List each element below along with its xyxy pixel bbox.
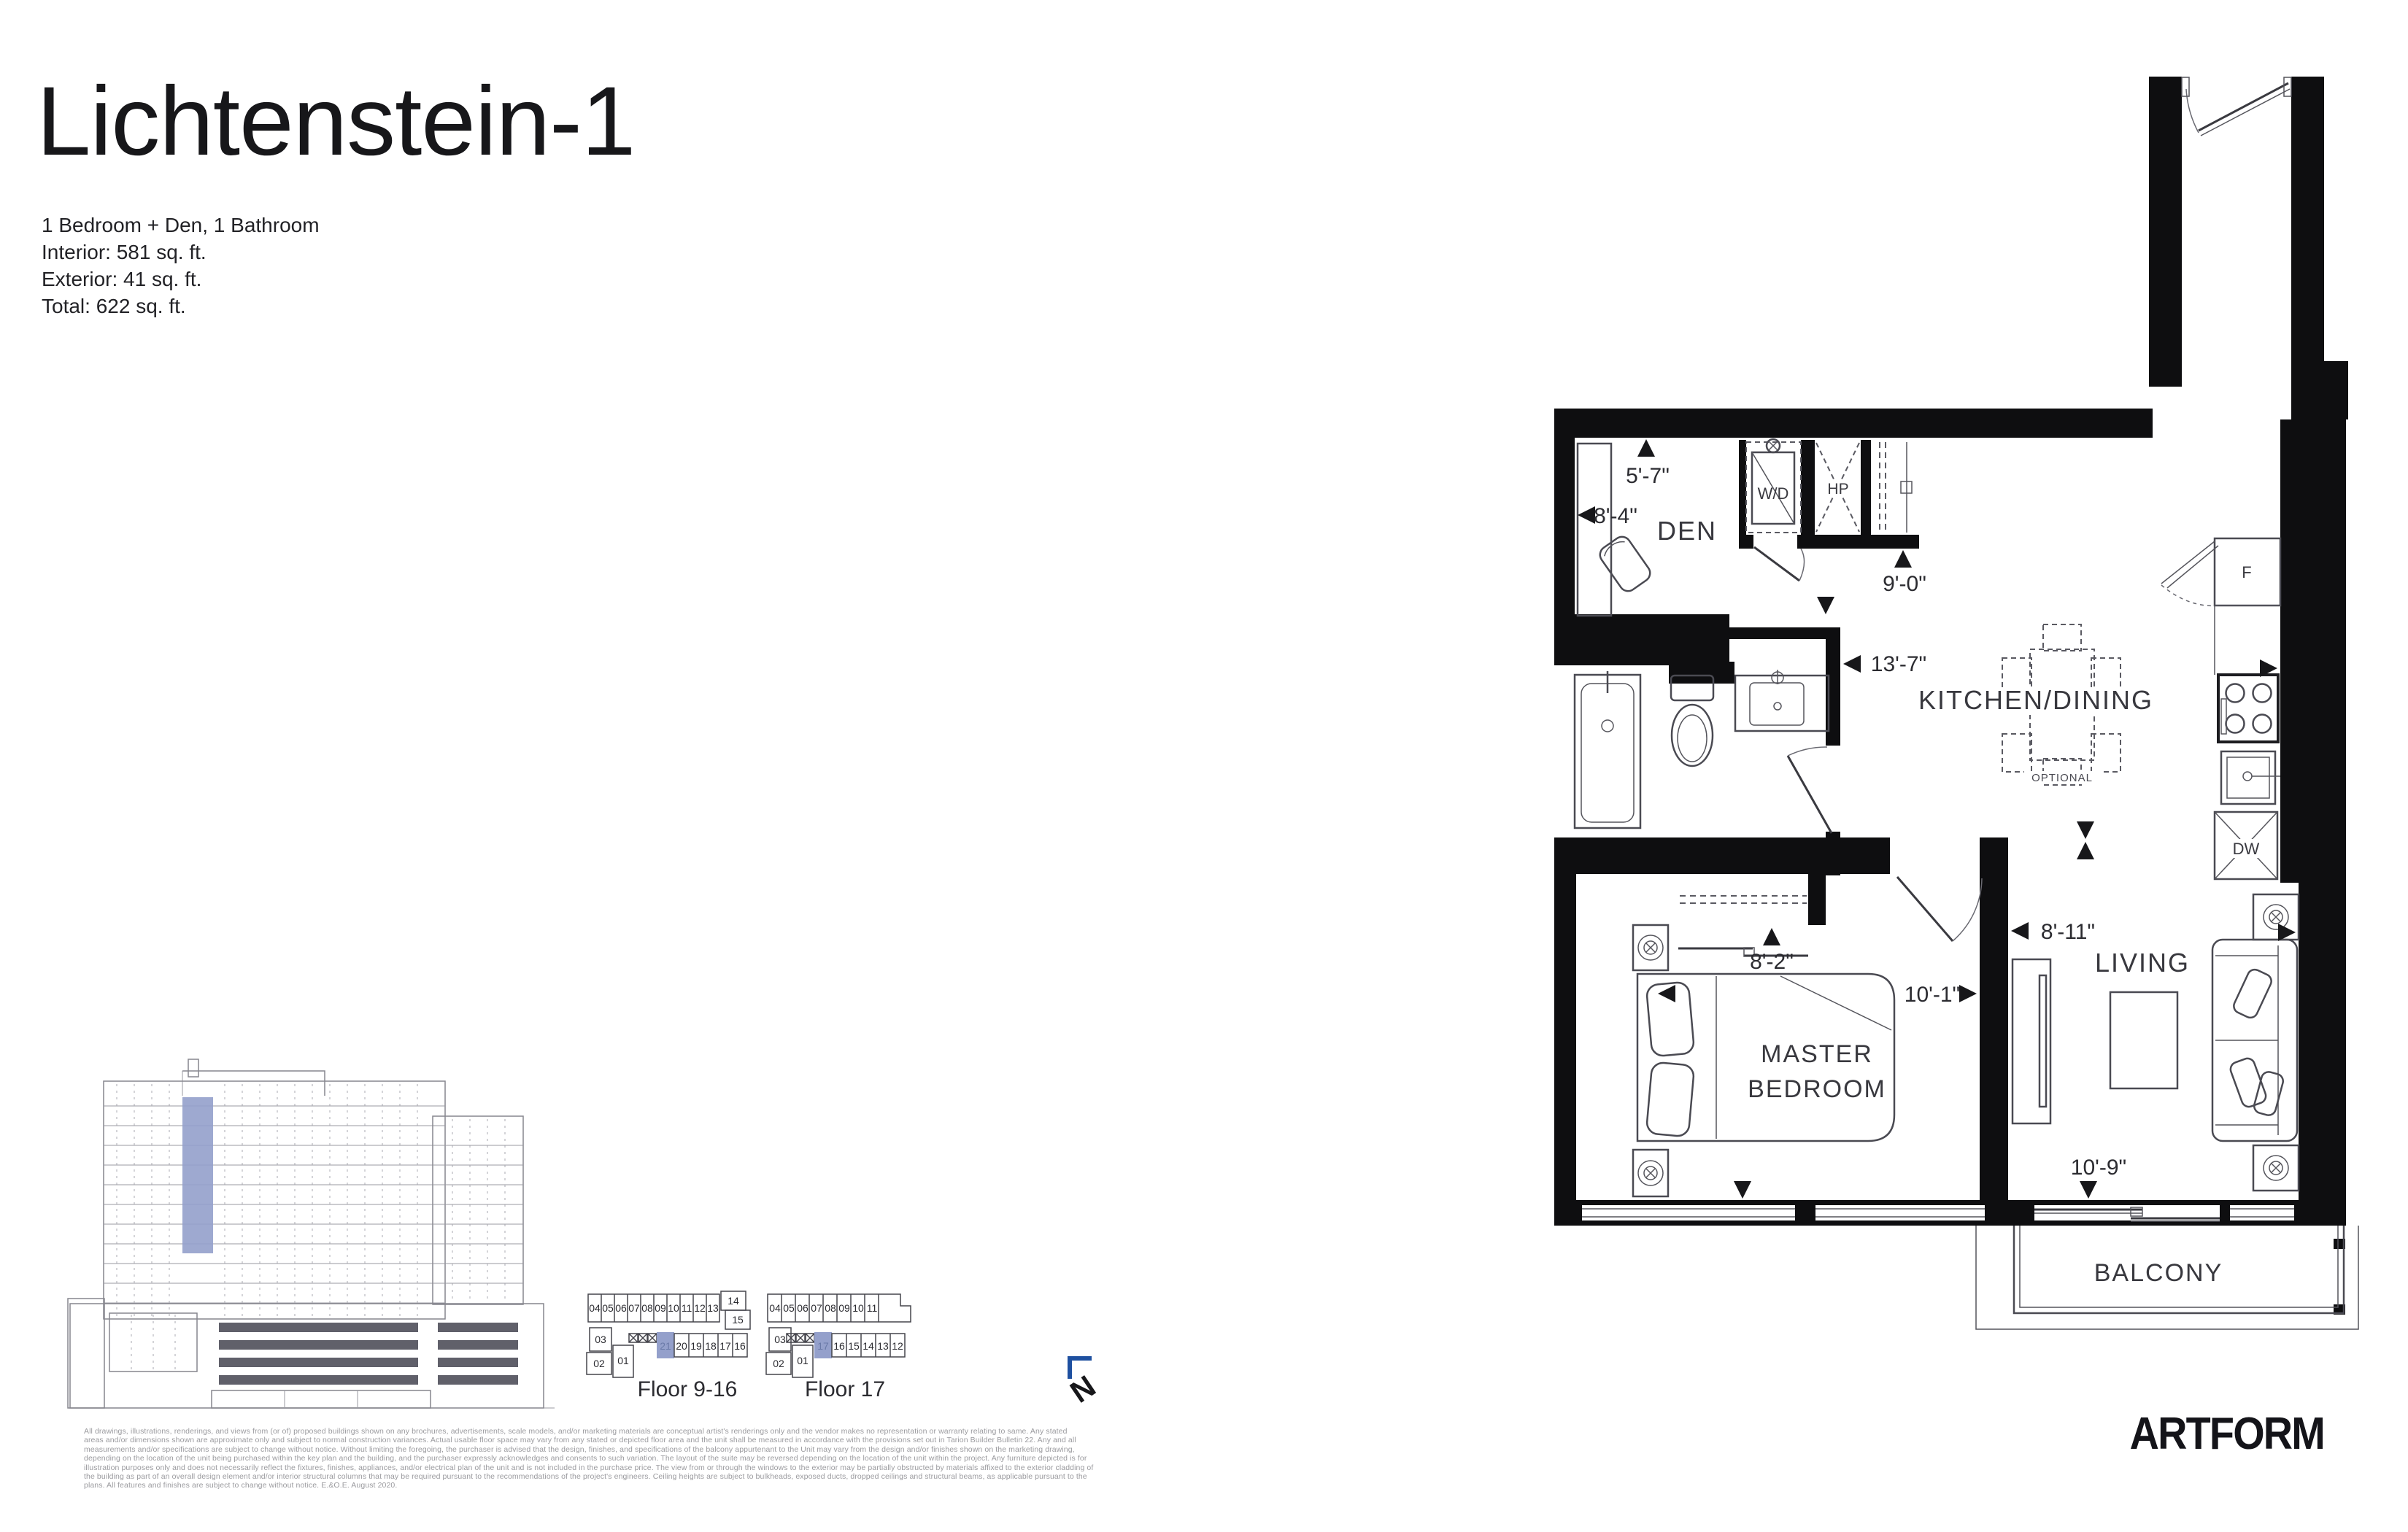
arrow-down-icon	[1817, 597, 1834, 614]
kp2-unit: 02	[773, 1358, 784, 1369]
kp2-unit: 14	[863, 1340, 874, 1352]
arrow-right-icon	[2278, 924, 2296, 941]
kp1-unit: 11	[682, 1302, 692, 1314]
dimensions: 5'-7" 8'-4" 9'-0" 13'-7" 8'-2" 10'-1" 8'…	[1578, 439, 2296, 1199]
bedroom-door	[1897, 877, 1982, 941]
balcony-label: BALCONY	[2094, 1259, 2223, 1287]
arrow-up-icon	[1637, 439, 1655, 457]
arrow-right-icon	[1959, 985, 1977, 1002]
kp1-unit: 06	[615, 1302, 627, 1314]
kp1-unit: 16	[734, 1340, 746, 1352]
kp1-unit: 17	[719, 1340, 731, 1352]
dishwasher-label: DW	[2233, 840, 2260, 858]
living-label: LIVING	[2095, 948, 2190, 978]
kp1-unit: 01	[617, 1355, 629, 1366]
kp1-unit: 15	[732, 1314, 744, 1326]
elevation-mullions	[117, 1084, 417, 1318]
kitchen-dining-label: KITCHEN/DINING	[1918, 685, 2153, 715]
arrow-left-icon	[1658, 985, 1675, 1002]
plan-canvas: W/D HP F	[0, 0, 2408, 1532]
kp2-unit: 15	[848, 1340, 860, 1352]
kp1-unit: 12	[694, 1302, 706, 1314]
arrow-up-icon	[2077, 842, 2094, 859]
kp2-unit: 10	[852, 1302, 864, 1314]
exterior-windows	[1582, 1205, 2294, 1221]
hp-closet: HP	[1816, 443, 1859, 532]
kp2-unit: 07	[811, 1302, 822, 1314]
kp1-unit: 02	[593, 1358, 605, 1369]
arrow-left-icon	[1843, 655, 1861, 673]
master-bedroom-label-line2: BEDROOM	[1748, 1075, 1886, 1103]
artform-logo: ARTFORM	[2124, 1408, 2325, 1460]
kp2-unit: 13	[877, 1340, 889, 1352]
heat-pump-label: HP	[1827, 481, 1848, 498]
keyplan-floor-9-16: 04 05 06 07 08 09 10 11 12 13 14 15 21	[587, 1291, 750, 1401]
dim-den-width: 5'-7"	[1626, 464, 1670, 488]
disclaimer-line: measurements and/or specifications are s…	[84, 1445, 1093, 1454]
dim-living-width: 8'-11"	[2041, 920, 2095, 944]
keyplan-floor-17: 04 05 06 07 08 09 10 11 17 16 15 14 1	[766, 1294, 911, 1401]
disclaimer-line: depending on the location of the unit be…	[84, 1454, 1093, 1463]
kp2-unit: 09	[838, 1302, 850, 1314]
kp1-unit: 09	[655, 1302, 666, 1314]
building-elevation	[68, 1059, 555, 1408]
disclaimer-line: All drawings, illustrations, renderings,…	[84, 1427, 1093, 1436]
kp1-unit: 07	[628, 1302, 640, 1314]
kp1-label: Floor 9-16	[638, 1377, 738, 1401]
dim-bedroom-width: 8'-2"	[1750, 950, 1794, 974]
dim-bedroom-depth: 10'-1"	[1905, 983, 1960, 1007]
disclaimer-line: the building as part of an overall desig…	[84, 1472, 1093, 1481]
washer-dryer-label: W/D	[1758, 484, 1789, 503]
bedroom-closet	[1678, 896, 1808, 956]
kp2-unit: 05	[783, 1302, 795, 1314]
kp2-unit: 12	[892, 1340, 903, 1352]
disclaimer-line: areas and/or dimensions shown are approx…	[84, 1436, 1093, 1444]
kp1-unit: 20	[676, 1340, 687, 1352]
dim-kitchen: 13'-7"	[1871, 652, 1926, 676]
kp1-unit: 14	[728, 1295, 739, 1307]
kp2-label: Floor 17	[805, 1377, 885, 1401]
kp2-unit: 08	[825, 1302, 836, 1314]
arrow-left-icon	[2011, 922, 2029, 940]
disclaimer-line: illustration purposes only and does not …	[84, 1463, 1093, 1472]
kp1-unit: 19	[690, 1340, 702, 1352]
kp1-unit: 18	[705, 1340, 717, 1352]
kp1-unit: 13	[707, 1302, 719, 1314]
master-bedroom-label-line1: MASTER	[1761, 1040, 1873, 1068]
arrow-down-icon	[1734, 1181, 1751, 1199]
kp1-highlight-number: 21	[660, 1340, 671, 1352]
floorplan-sheet: Lichtenstein-1 1 Bedroom + Den, 1 Bathro…	[0, 0, 2408, 1532]
fridge-label: F	[2242, 563, 2251, 581]
kp1-unit: 10	[668, 1302, 679, 1314]
kp2-unit: 01	[797, 1355, 809, 1366]
kp2-unit: 16	[833, 1340, 845, 1352]
dim-hall: 9'-0"	[1883, 572, 1926, 596]
dim-living-depth: 10'-9"	[2071, 1156, 2126, 1180]
den-label: DEN	[1657, 516, 1717, 546]
north-arrow: N	[1064, 1358, 1101, 1409]
dim-den-depth: 8'-4"	[1594, 504, 1637, 528]
kp1-unit: 04	[589, 1302, 601, 1314]
kp1-unit: 03	[595, 1334, 606, 1345]
kp2-unit: 04	[769, 1302, 781, 1314]
kp2-unit: 06	[797, 1302, 809, 1314]
kp2-unit: 11	[867, 1302, 878, 1314]
kp1-unit: 08	[641, 1302, 653, 1314]
entry-closet	[1880, 442, 1912, 533]
elevation-unit-highlight	[182, 1097, 213, 1253]
kp1-unit: 05	[602, 1302, 614, 1314]
kp2-unit: 03	[774, 1334, 786, 1345]
floor-plan: W/D HP F	[1554, 77, 2358, 1329]
arrow-up-icon	[1894, 550, 1912, 568]
bathroom	[1575, 670, 1840, 833]
disclaimer-line: plans. All features and finishes are sub…	[84, 1481, 1093, 1490]
washer-dryer-closet: W/D	[1746, 439, 1805, 581]
kp2-highlight-number: 17	[817, 1340, 829, 1352]
arrow-down-icon	[2080, 1181, 2097, 1199]
kitchen: F DW	[2161, 538, 2280, 879]
legal-disclaimer: All drawings, illustrations, renderings,…	[84, 1427, 1093, 1490]
arrow-down-icon	[2077, 821, 2094, 839]
entry-door	[2182, 77, 2291, 136]
arrow-up-icon	[1763, 928, 1780, 945]
arrow-left-icon	[1578, 506, 1595, 524]
optional-label: OPTIONAL	[2031, 772, 2093, 784]
